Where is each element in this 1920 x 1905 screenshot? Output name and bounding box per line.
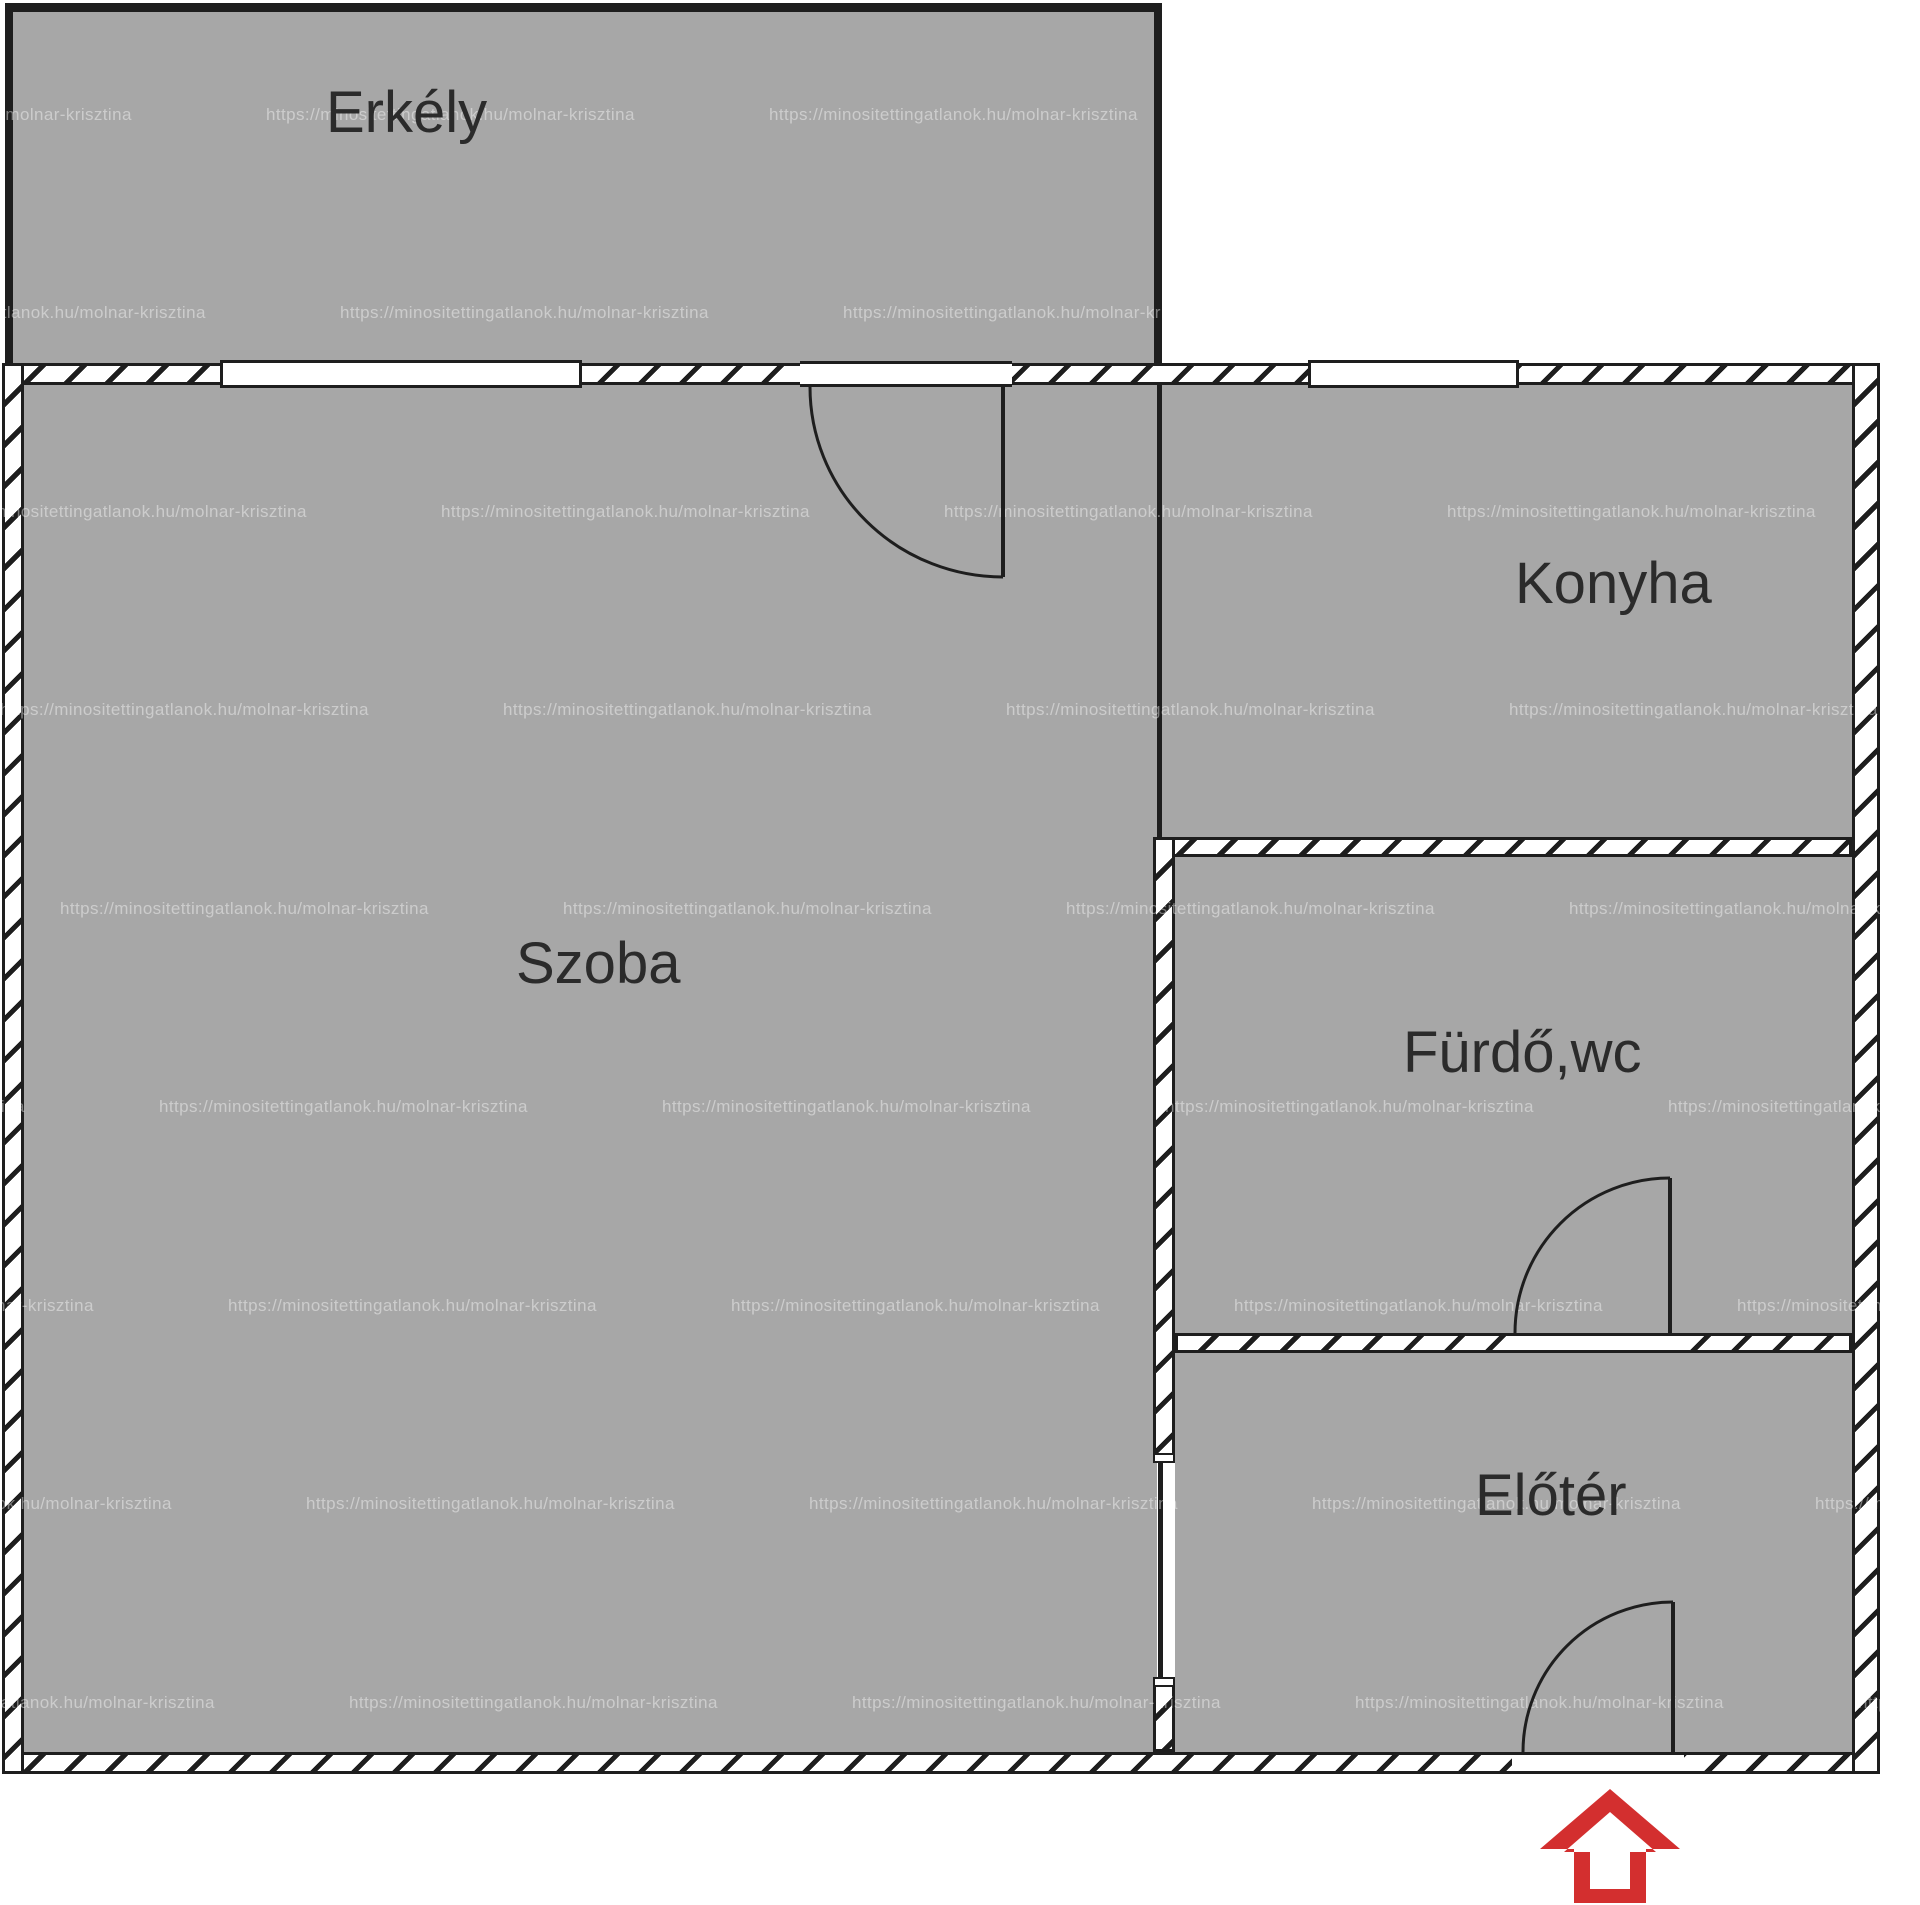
watermark-text: https://minositettingatlanok.hu/molnar-k… [1426,1891,1795,1905]
label-konyha: Konyha [1515,549,1712,619]
balcony-door-opening [800,361,1012,387]
partition-szoba-eloter [1158,1463,1163,1677]
watermark-text: https://minositettingatlanok.hu/molnar-k… [923,1891,1292,1905]
room-furdo [1175,857,1852,1333]
label-balcony: Erkély [326,78,487,148]
watermark-text: https://minositettingatlanok.hu/molnar-k… [1346,303,1715,323]
watermark-text: https://minositettingatlanok.hu/molnar-k… [1849,303,1920,323]
watermark-text: https://minositettingatlanok.hu/molnar-k… [1775,105,1920,125]
window-szoba [220,360,582,388]
balcony-rail-right [1154,3,1162,363]
wall-right [1852,363,1880,1774]
furdo-door-opening [1512,1333,1684,1353]
wall-konyha-furdo [1153,837,1852,857]
room-szoba [24,385,1157,1752]
wall-left [2,363,24,1774]
partition-szoba-konyha [1157,385,1162,837]
watermark-text: https://minositettingatlanok.hu/molnar-k… [0,1891,286,1905]
label-furdo: Fürdő,wc [1403,1018,1642,1088]
label-szoba: Szoba [516,929,680,999]
watermark-text: https://minositettingatlanok.hu/molnar-k… [420,1891,789,1905]
watermark-text: https://minositettingatlanok.hu/molnar-k… [1272,105,1641,125]
balcony-rail-top [5,3,1162,12]
room-eloter [1175,1353,1852,1752]
floor-plan: https://minositettingatlanok.hu/molnar-k… [0,0,1920,1905]
wall-end-cap-lower [1153,1677,1175,1687]
room-balcony [5,3,1162,363]
balcony-rail-left [5,3,13,363]
entrance-door-opening [1512,1752,1684,1774]
wall-end-cap-upper [1153,1453,1175,1463]
wall-szoba-divider-low [1153,1677,1175,1752]
window-konyha [1308,360,1519,388]
wall-szoba-divider-mid [1153,837,1175,1463]
entrance-arrow-icon [1540,1789,1680,1903]
room-konyha [1162,385,1852,837]
label-eloter: Előtér [1475,1461,1627,1531]
